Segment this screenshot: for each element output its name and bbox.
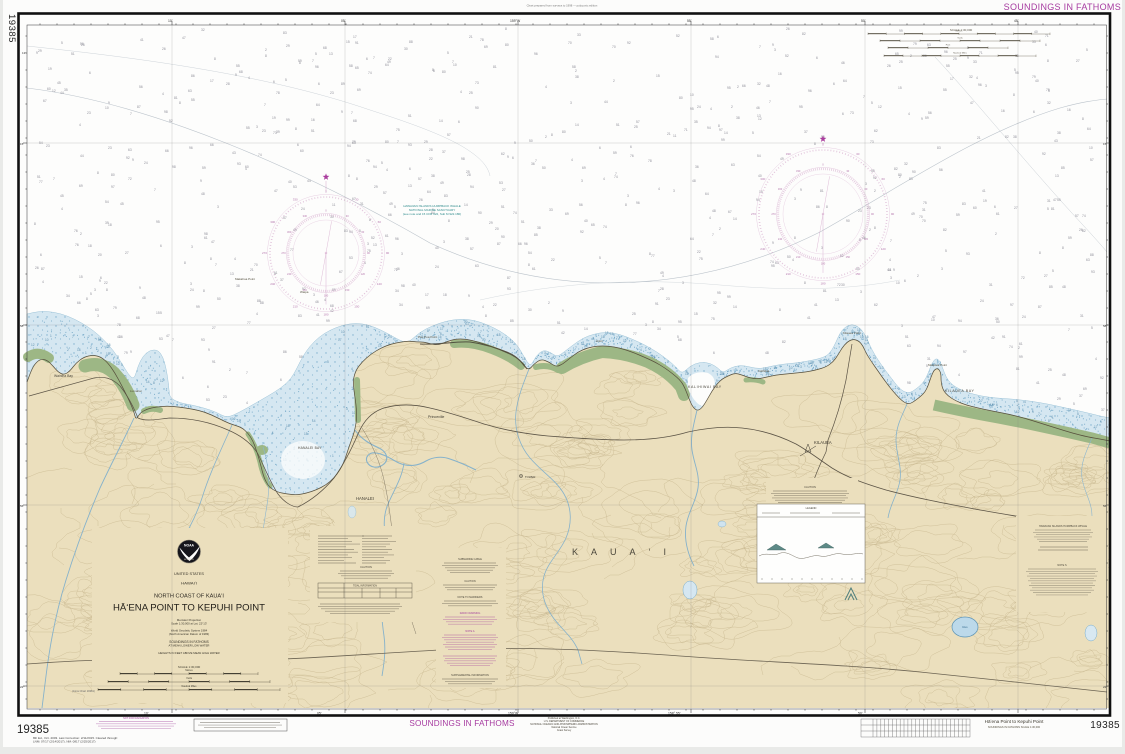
svg-text:270: 270: [751, 212, 756, 216]
svg-text:12: 12: [31, 343, 35, 347]
svg-text:4: 4: [156, 377, 158, 381]
svg-text:9: 9: [99, 279, 101, 283]
svg-text:95: 95: [727, 86, 731, 90]
svg-text:8: 8: [826, 205, 828, 209]
svg-text:22: 22: [493, 303, 497, 307]
svg-text:5: 5: [160, 311, 162, 315]
svg-text:3: 3: [794, 197, 796, 201]
svg-text:3: 3: [581, 179, 583, 183]
svg-text:40: 40: [435, 246, 439, 250]
svg-text:4: 4: [927, 375, 929, 379]
svg-text:Puu Poa Point: Puu Poa Point: [418, 335, 437, 339]
svg-text:15: 15: [656, 74, 660, 78]
svg-text:95: 95: [678, 320, 682, 324]
svg-text:31: 31: [922, 208, 926, 212]
svg-text:LEGEND: LEGEND: [806, 506, 817, 510]
svg-text:9: 9: [921, 117, 923, 121]
svg-text:81: 81: [820, 189, 824, 193]
svg-text:51: 51: [501, 205, 505, 209]
svg-text:55: 55: [946, 64, 950, 68]
svg-text:41: 41: [1036, 381, 1040, 385]
svg-text:7: 7: [759, 45, 761, 49]
svg-text:9: 9: [716, 379, 718, 383]
svg-text:74: 74: [1082, 214, 1086, 218]
svg-text:63: 63: [927, 43, 931, 47]
svg-text:20: 20: [98, 253, 102, 257]
svg-text:48: 48: [765, 351, 769, 355]
svg-text:38: 38: [431, 174, 435, 178]
svg-text:8: 8: [814, 142, 816, 146]
svg-text:25: 25: [634, 125, 638, 129]
svg-text:88: 88: [1090, 253, 1094, 257]
svg-text:76: 76: [630, 154, 634, 158]
svg-text:26: 26: [887, 64, 891, 68]
svg-text:59: 59: [202, 166, 206, 170]
svg-text:2: 2: [1018, 346, 1020, 350]
svg-text:5: 5: [1086, 48, 1088, 52]
svg-text:14: 14: [146, 380, 150, 384]
svg-text:36: 36: [531, 162, 535, 166]
svg-text:11: 11: [1068, 408, 1072, 412]
svg-text:18: 18: [88, 244, 92, 248]
svg-text:66: 66: [742, 84, 746, 88]
svg-text:12: 12: [52, 89, 56, 93]
svg-text:96: 96: [636, 201, 640, 205]
svg-text:270: 270: [262, 251, 267, 255]
svg-text:92: 92: [1100, 376, 1104, 380]
svg-text:270: 270: [771, 212, 776, 216]
svg-text:8: 8: [153, 381, 155, 385]
svg-text:64: 64: [1087, 127, 1091, 131]
svg-text:KALIHIWAI BAY: KALIHIWAI BAY: [688, 385, 722, 389]
svg-text:91: 91: [1002, 335, 1006, 339]
svg-text:57: 57: [418, 177, 422, 181]
svg-text:2: 2: [575, 69, 577, 73]
svg-text:69: 69: [79, 184, 83, 188]
svg-text:74: 74: [603, 225, 607, 229]
svg-text:(see note and 15 CFR 922, Sub: (see note and 15 CFR 922, Sub M 922.180): [403, 212, 461, 216]
svg-text:41: 41: [117, 335, 121, 339]
svg-text:SOUNDINGS IN FATHOMS SCALE: SOUNDINGS IN FATHOMS SCALE 1:30,000: [988, 725, 1041, 729]
svg-text:6: 6: [280, 378, 282, 382]
svg-text:8: 8: [427, 329, 429, 333]
svg-text:83: 83: [444, 194, 448, 198]
svg-text:6: 6: [512, 156, 514, 160]
svg-text:8: 8: [432, 68, 434, 72]
svg-text:15: 15: [605, 331, 609, 335]
svg-text:79: 79: [113, 306, 117, 310]
svg-text:83: 83: [937, 146, 941, 150]
svg-text:55: 55: [1057, 198, 1061, 202]
svg-text:3: 3: [256, 125, 258, 129]
svg-text:26: 26: [419, 198, 423, 202]
svg-text:93: 93: [966, 252, 970, 256]
svg-text:19: 19: [810, 361, 814, 365]
svg-text:CAUTION: CAUTION: [464, 580, 475, 583]
svg-text:34: 34: [66, 294, 70, 298]
svg-text:7: 7: [172, 338, 174, 342]
svg-text:Kalihikai: Kalihikai: [758, 369, 770, 373]
svg-text:96: 96: [395, 237, 399, 241]
svg-text:47: 47: [1053, 198, 1057, 202]
svg-text:69: 69: [357, 88, 361, 92]
svg-text:6: 6: [297, 143, 299, 147]
svg-text:23: 23: [330, 91, 334, 95]
svg-text:92: 92: [580, 230, 584, 234]
svg-text:2: 2: [613, 79, 615, 83]
svg-text:3: 3: [401, 252, 403, 256]
svg-text:6: 6: [1033, 110, 1035, 114]
svg-text:150: 150: [846, 255, 851, 259]
svg-text:Yards: Yards: [186, 677, 193, 680]
svg-text:43: 43: [232, 151, 236, 155]
svg-text:7: 7: [863, 95, 865, 99]
svg-text:3: 3: [501, 181, 503, 185]
svg-text:87: 87: [137, 105, 141, 109]
svg-text:96: 96: [978, 83, 982, 87]
svg-text:NOTE TO MARINERS: NOTE TO MARINERS: [458, 596, 483, 599]
svg-text:52: 52: [169, 119, 173, 123]
svg-text:38: 38: [537, 226, 541, 230]
svg-text:17: 17: [1094, 425, 1098, 429]
svg-text:9: 9: [1032, 410, 1034, 414]
svg-text:69: 69: [484, 45, 488, 49]
svg-text:64: 64: [843, 79, 847, 83]
svg-text:8: 8: [1082, 117, 1084, 121]
svg-text:SUPPLEMENTAL INFORMATION: SUPPLEMENTAL INFORMATION: [451, 674, 489, 677]
svg-text:3: 3: [901, 324, 903, 328]
svg-text:53: 53: [206, 398, 210, 402]
svg-text:7: 7: [667, 360, 669, 364]
svg-text:91: 91: [212, 360, 216, 364]
svg-text:54: 54: [105, 200, 109, 204]
svg-text:2: 2: [737, 85, 739, 89]
svg-text:52: 52: [676, 34, 680, 38]
svg-text:240: 240: [778, 237, 783, 241]
svg-text:8: 8: [804, 281, 806, 285]
svg-text:47: 47: [166, 334, 170, 338]
svg-text:6: 6: [842, 112, 844, 116]
svg-text:7: 7: [130, 112, 132, 116]
svg-text:53: 53: [293, 185, 297, 189]
svg-text:17: 17: [210, 79, 214, 83]
svg-text:300: 300: [287, 230, 292, 234]
svg-text:44: 44: [307, 179, 311, 183]
svg-text:4: 4: [482, 305, 484, 309]
svg-text:75: 75: [711, 317, 715, 321]
svg-text:16: 16: [311, 118, 315, 122]
svg-text:32: 32: [969, 75, 973, 79]
svg-text:22: 22: [104, 281, 108, 285]
svg-text:23: 23: [87, 111, 91, 115]
svg-text:41: 41: [982, 189, 986, 193]
svg-text:8: 8: [265, 54, 267, 58]
svg-text:8: 8: [551, 133, 553, 137]
svg-text:47: 47: [970, 101, 974, 105]
svg-text:98: 98: [401, 284, 405, 288]
svg-text:85: 85: [1061, 166, 1065, 170]
svg-text:10: 10: [1089, 146, 1093, 150]
svg-text:4: 4: [1051, 415, 1053, 419]
svg-text:46: 46: [841, 61, 845, 65]
svg-text:1: 1: [85, 351, 87, 355]
svg-text:71: 71: [979, 51, 983, 55]
svg-text:330: 330: [293, 198, 298, 202]
svg-text:Chart prepared from surveys to: Chart prepared from surveys to 1998 — po…: [527, 4, 598, 8]
svg-text:31: 31: [989, 283, 993, 287]
svg-text:Res: Res: [962, 625, 968, 629]
svg-text:90: 90: [501, 235, 505, 239]
svg-text:4: 4: [460, 90, 462, 94]
svg-text:210: 210: [796, 255, 801, 259]
svg-text:13: 13: [230, 272, 234, 276]
svg-text:47: 47: [932, 315, 936, 319]
svg-text:96: 96: [534, 52, 538, 56]
svg-text:15: 15: [694, 312, 698, 316]
svg-text:10′: 10′: [144, 712, 149, 716]
svg-text:69: 69: [565, 212, 569, 216]
svg-text:150: 150: [855, 272, 860, 276]
svg-text:7: 7: [397, 140, 399, 144]
svg-text:5: 5: [1091, 326, 1093, 330]
svg-text:10: 10: [341, 330, 345, 334]
svg-text:40: 40: [1035, 79, 1039, 83]
svg-text:5: 5: [327, 360, 329, 364]
svg-text:97: 97: [719, 128, 723, 132]
svg-text:66: 66: [165, 149, 169, 153]
svg-text:47: 47: [211, 240, 215, 244]
svg-text:63: 63: [907, 344, 911, 348]
svg-text:71: 71: [684, 128, 688, 132]
svg-text:NOTE S: NOTE S: [1057, 564, 1067, 567]
svg-text:45: 45: [120, 202, 124, 206]
svg-text:2: 2: [229, 368, 231, 372]
svg-text:55: 55: [246, 126, 250, 130]
svg-text:8: 8: [86, 297, 88, 301]
svg-text:33: 33: [1032, 40, 1036, 44]
svg-text:4: 4: [792, 258, 794, 262]
svg-text:7: 7: [616, 336, 618, 340]
svg-text:4: 4: [162, 92, 164, 96]
svg-text:8: 8: [1048, 419, 1050, 423]
svg-text:31: 31: [360, 202, 364, 206]
svg-text:RADIO WARNING: RADIO WARNING: [460, 612, 481, 615]
svg-text:31: 31: [1047, 199, 1051, 203]
svg-text:TIDAL INFORMATION: TIDAL INFORMATION: [353, 585, 377, 588]
svg-text:7: 7: [1038, 412, 1040, 416]
svg-text:13: 13: [880, 366, 884, 370]
svg-text:3: 3: [313, 293, 315, 297]
svg-text:6: 6: [713, 351, 715, 355]
svg-text:180: 180: [324, 294, 329, 298]
svg-text:79: 79: [913, 42, 917, 46]
svg-text:10: 10: [45, 338, 49, 342]
svg-text:27: 27: [1044, 274, 1048, 278]
svg-text:5: 5: [1047, 207, 1049, 211]
svg-text:60: 60: [300, 149, 304, 153]
svg-text:LNM: 07/17 (2/14/2017), NM: 08: LNM: 07/17 (2/14/2017), NM: 0817 (2/25/2…: [33, 740, 96, 744]
svg-text:64: 64: [705, 192, 709, 196]
svg-text:180: 180: [323, 313, 328, 317]
svg-text:30: 30: [856, 152, 860, 156]
svg-text:7: 7: [53, 177, 55, 181]
svg-text:7: 7: [246, 371, 248, 375]
svg-text:240: 240: [760, 247, 765, 251]
svg-text:45′: 45′: [1014, 19, 1019, 23]
svg-text:19: 19: [860, 335, 864, 339]
svg-text:1: 1: [272, 431, 274, 435]
svg-text:99: 99: [286, 118, 290, 122]
svg-text:7: 7: [264, 103, 266, 107]
svg-text:48: 48: [766, 84, 770, 88]
svg-text:98: 98: [461, 157, 465, 161]
svg-text:Coast Survey: Coast Survey: [557, 729, 572, 732]
svg-text:58: 58: [710, 37, 714, 41]
svg-text:38: 38: [736, 116, 740, 120]
svg-text:32: 32: [904, 162, 908, 166]
svg-text:37: 37: [1079, 394, 1083, 398]
svg-text:70: 70: [922, 219, 926, 223]
svg-text:6: 6: [994, 205, 996, 209]
svg-text:8: 8: [485, 314, 487, 318]
svg-text:99: 99: [196, 305, 200, 309]
svg-text:99: 99: [727, 295, 731, 299]
svg-text:45: 45: [60, 194, 64, 198]
svg-text:70: 70: [568, 41, 572, 45]
svg-text:74: 74: [513, 211, 517, 215]
svg-text:NOTE A: NOTE A: [465, 630, 475, 633]
svg-text:86: 86: [283, 350, 287, 354]
svg-text:4: 4: [386, 168, 388, 172]
svg-text:83: 83: [962, 202, 966, 206]
svg-text:7: 7: [575, 346, 577, 350]
svg-text:62: 62: [501, 152, 505, 156]
svg-text:72: 72: [394, 268, 398, 272]
svg-text:2: 2: [564, 352, 566, 356]
svg-text:7: 7: [154, 188, 156, 192]
svg-text:56′: 56′: [1103, 504, 1107, 508]
svg-text:180: 180: [821, 262, 826, 266]
svg-text:77: 77: [247, 321, 251, 325]
svg-text:19: 19: [48, 67, 52, 71]
svg-text:35: 35: [64, 88, 68, 92]
svg-text:59: 59: [613, 151, 617, 155]
svg-text:4: 4: [976, 76, 978, 80]
svg-text:4: 4: [79, 123, 81, 127]
svg-text:19: 19: [983, 199, 987, 203]
svg-text:87: 87: [1038, 305, 1042, 309]
svg-text:3: 3: [570, 101, 572, 105]
svg-text:8: 8: [106, 288, 108, 292]
svg-text:74: 74: [258, 153, 262, 157]
svg-text:34: 34: [395, 289, 399, 293]
svg-text:73: 73: [850, 111, 854, 115]
svg-text:44: 44: [80, 154, 84, 158]
svg-text:(Joins Chart 19381): (Joins Chart 19381): [72, 689, 95, 693]
svg-text:4: 4: [571, 158, 573, 162]
svg-text:1: 1: [820, 361, 822, 365]
svg-text:52: 52: [371, 236, 375, 240]
svg-text:83: 83: [344, 229, 348, 233]
svg-text:23: 23: [262, 129, 266, 133]
svg-text:98: 98: [164, 110, 168, 114]
svg-text:19385: 19385: [17, 724, 49, 736]
svg-text:51: 51: [521, 220, 525, 224]
svg-text:48: 48: [142, 296, 146, 300]
svg-text:8: 8: [625, 203, 627, 207]
svg-text:44: 44: [887, 268, 891, 272]
svg-text:83: 83: [298, 314, 302, 318]
svg-text:9: 9: [130, 350, 132, 354]
svg-text:83: 83: [283, 31, 287, 35]
svg-text:51: 51: [71, 52, 75, 56]
svg-text:50′: 50′: [858, 712, 863, 716]
svg-text:27: 27: [125, 251, 129, 255]
svg-text:95: 95: [799, 105, 803, 109]
svg-text:210: 210: [786, 272, 791, 276]
svg-text:7: 7: [605, 261, 607, 265]
svg-text:2: 2: [719, 227, 721, 231]
svg-text:54: 54: [757, 154, 761, 158]
svg-text:13′: 13′: [22, 51, 26, 55]
svg-text:8: 8: [1039, 251, 1041, 255]
svg-text:77: 77: [651, 254, 655, 258]
svg-text:63: 63: [731, 163, 735, 167]
svg-text:29: 29: [38, 49, 42, 53]
svg-text:24: 24: [301, 207, 305, 211]
svg-text:60: 60: [973, 206, 977, 210]
svg-text:8: 8: [528, 263, 530, 267]
svg-text:37: 37: [442, 150, 446, 154]
svg-text:8: 8: [898, 387, 900, 391]
svg-text:25: 25: [469, 91, 473, 95]
svg-text:15: 15: [304, 432, 308, 436]
svg-text:3: 3: [865, 182, 867, 186]
svg-text:5: 5: [499, 181, 501, 185]
svg-text:4: 4: [61, 207, 63, 211]
svg-text:73: 73: [870, 140, 874, 144]
svg-text:65: 65: [355, 66, 359, 70]
svg-text:95: 95: [156, 220, 160, 224]
svg-text:88: 88: [409, 40, 413, 44]
svg-text:94: 94: [715, 55, 719, 59]
svg-text:55: 55: [871, 169, 875, 173]
svg-text:2: 2: [869, 228, 871, 232]
svg-text:7: 7: [1068, 328, 1070, 332]
svg-text:62: 62: [874, 303, 878, 307]
svg-text:5: 5: [447, 51, 449, 55]
svg-text:17: 17: [353, 35, 357, 39]
svg-text:17: 17: [425, 293, 429, 297]
svg-text:92: 92: [627, 41, 631, 45]
svg-text:64: 64: [427, 190, 431, 194]
svg-text:8: 8: [203, 289, 205, 293]
svg-text:58′: 58′: [1103, 324, 1107, 328]
svg-text:94: 94: [707, 126, 711, 130]
svg-text:12: 12: [824, 360, 828, 364]
svg-text:97: 97: [1010, 303, 1014, 307]
svg-text:56: 56: [939, 168, 943, 172]
svg-text:6: 6: [904, 279, 906, 283]
svg-text:KAUAʻI: KAUAʻI: [572, 547, 679, 557]
svg-text:75: 75: [923, 201, 927, 205]
svg-text:49: 49: [660, 271, 664, 275]
svg-text:8: 8: [874, 226, 876, 230]
svg-text:10: 10: [482, 338, 486, 342]
svg-text:66: 66: [77, 301, 81, 305]
svg-text:90: 90: [478, 211, 482, 215]
svg-text:99: 99: [326, 319, 330, 323]
